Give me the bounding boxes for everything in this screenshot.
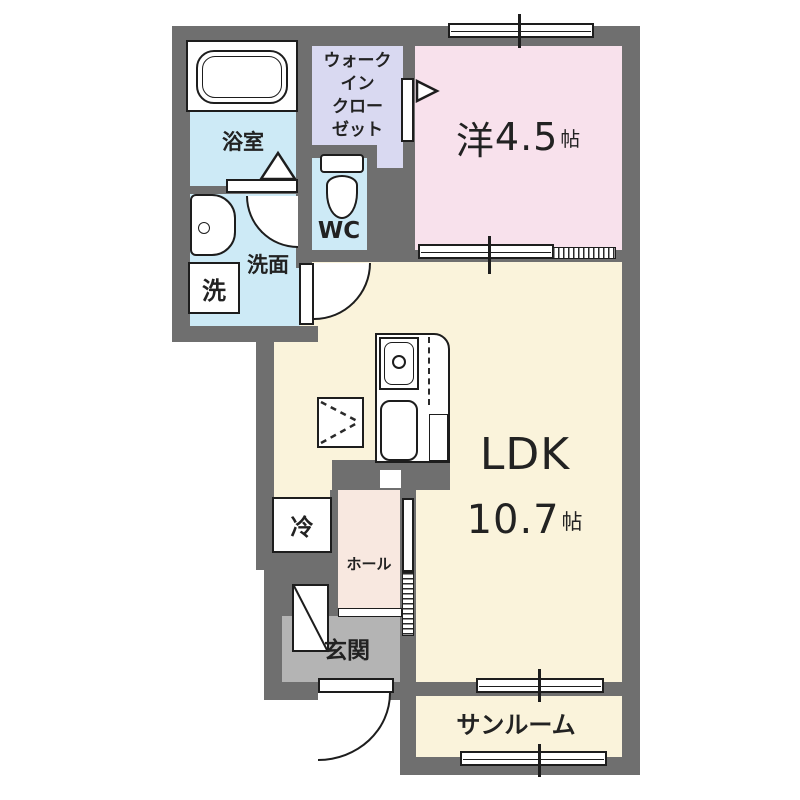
- ldk-size: 10.7: [467, 497, 560, 543]
- label-ldk: LDK: [430, 428, 620, 480]
- label-bathroom: 浴室: [190, 126, 296, 156]
- room-hall: [338, 490, 400, 612]
- counter-divider-dashed: [428, 337, 430, 405]
- label-hall: ホール: [336, 552, 402, 574]
- washbasin-icon: [190, 194, 236, 256]
- label-walk-in-closet: ウォーク イン クロー ゼット: [312, 46, 403, 146]
- label-sunroom: サンルーム: [410, 706, 622, 738]
- window-mullion-tick: [518, 14, 521, 48]
- sliding-door-line: [421, 252, 551, 253]
- wall-segment: [622, 26, 640, 775]
- label-western-room: 洋4.5帖: [415, 106, 622, 168]
- entrance-door-swing-arc: [318, 693, 391, 761]
- cabinet-door-dashed-icon: [318, 398, 363, 447]
- room-walk-in-closet-niche: [377, 145, 403, 170]
- window-mullion-tick: [488, 236, 491, 274]
- window-glass-line: [463, 759, 604, 760]
- sliding-door-track: [418, 244, 554, 259]
- label-refrigerator: 冷: [272, 497, 332, 553]
- faucet-icon: [392, 355, 406, 369]
- door-panel: [402, 498, 414, 572]
- door-panel: [226, 179, 298, 193]
- entrance-step: [338, 608, 402, 617]
- label-wc: WC: [310, 216, 368, 246]
- floorplan: 浴室 ウォーク イン クロー ゼット WC 洋4.5帖 洗面 洗 LDK 10.…: [0, 0, 800, 800]
- door-swing-triangle-icon: [414, 79, 440, 103]
- window-mullion-tick: [538, 744, 541, 777]
- window-mullion-tick: [538, 669, 541, 702]
- toilet-tank-icon: [320, 154, 364, 173]
- wic-line-1: ウォーク: [324, 50, 392, 73]
- wall-segment: [377, 168, 403, 250]
- label-ldk-size: 10.7帖: [430, 492, 620, 548]
- stove-icon: [380, 400, 418, 461]
- sliding-door-leaf: [402, 572, 414, 636]
- label-washing-machine: 洗: [188, 262, 240, 314]
- door-panel: [299, 263, 314, 325]
- wic-line-4: ゼット: [332, 119, 383, 142]
- entrance-door-panel: [318, 678, 394, 693]
- western-room-size: 4.5: [495, 115, 558, 159]
- wic-line-2: イン: [341, 73, 375, 96]
- window-glass-line: [451, 31, 591, 32]
- wall-niche: [380, 470, 401, 488]
- wall-segment: [264, 570, 282, 700]
- western-room-prefix: 洋: [456, 110, 495, 165]
- washbasin-drain: [198, 222, 210, 234]
- ldk-unit: 帖: [562, 505, 584, 535]
- wic-line-3: クロー: [332, 96, 383, 119]
- bathtub-inner-line: [202, 56, 282, 98]
- western-room-unit: 帖: [560, 123, 581, 152]
- wall-segment: [367, 158, 377, 250]
- window: [448, 23, 594, 38]
- sliding-door-leaf: [552, 247, 616, 259]
- label-washroom: 洗面: [236, 250, 300, 278]
- label-entrance: 玄関: [292, 632, 402, 664]
- window: [460, 751, 607, 766]
- wall-segment: [172, 326, 318, 342]
- wall-segment: [256, 552, 338, 570]
